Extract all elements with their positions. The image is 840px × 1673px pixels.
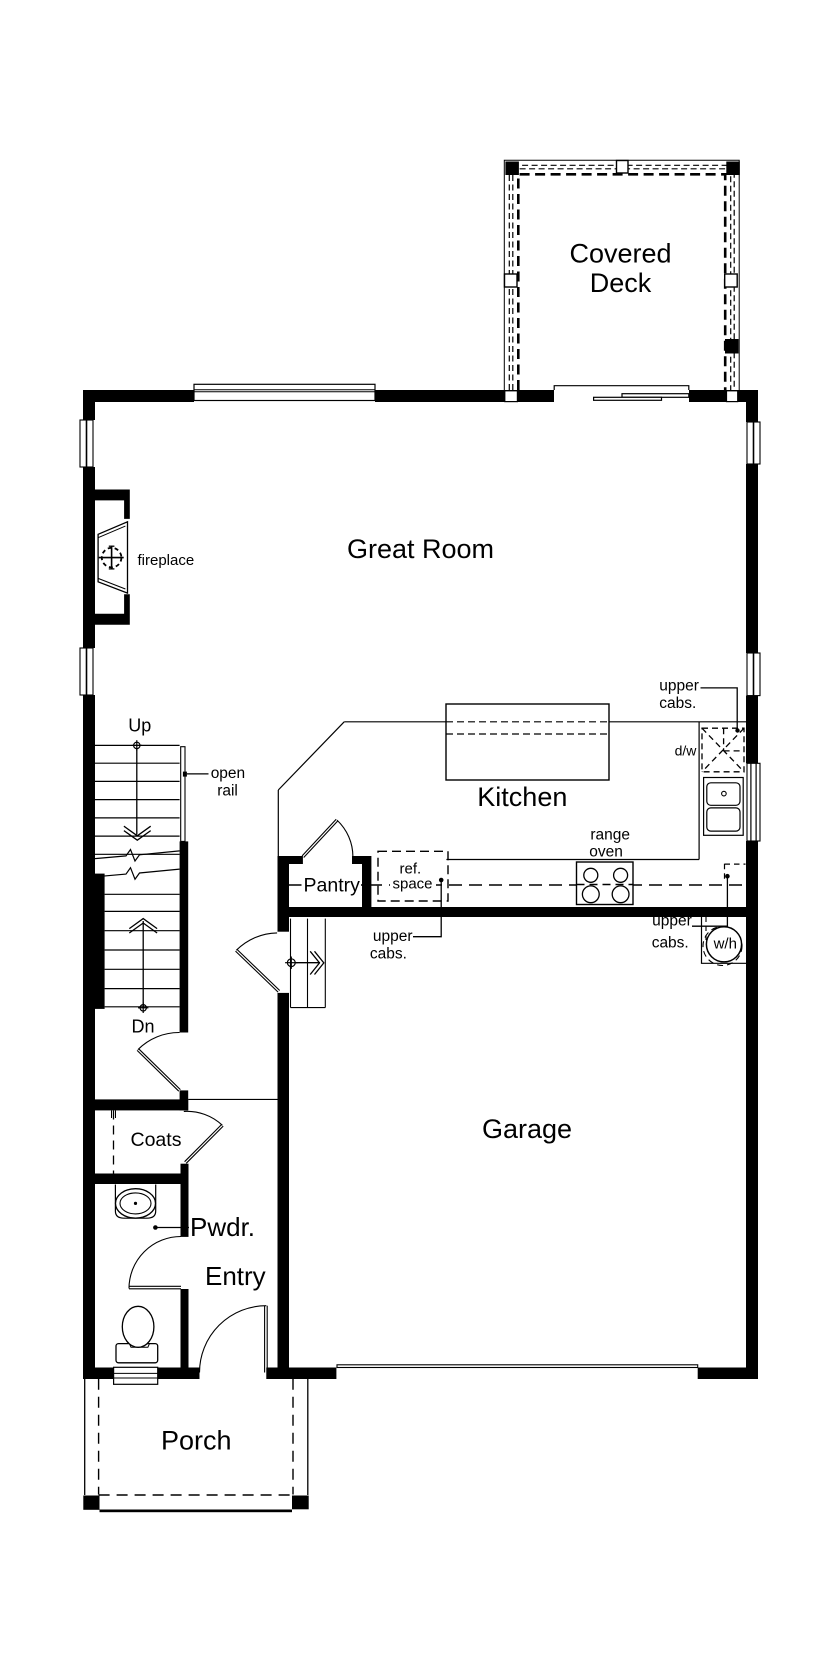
svg-text:open: open bbox=[211, 765, 245, 782]
svg-text:cabs.: cabs. bbox=[659, 695, 696, 712]
svg-text:range: range bbox=[590, 827, 630, 844]
svg-text:d/w: d/w bbox=[675, 743, 698, 759]
svg-text:cabs.: cabs. bbox=[370, 945, 407, 962]
svg-text:upper: upper bbox=[652, 913, 692, 930]
svg-text:Entry: Entry bbox=[205, 1261, 266, 1291]
svg-text:w/h: w/h bbox=[713, 936, 737, 953]
svg-text:Garage: Garage bbox=[482, 1114, 572, 1144]
svg-text:cabs.: cabs. bbox=[652, 934, 689, 951]
svg-text:Deck: Deck bbox=[590, 268, 652, 298]
svg-text:Porch: Porch bbox=[161, 1426, 232, 1456]
svg-text:fireplace: fireplace bbox=[138, 552, 195, 569]
svg-text:upper: upper bbox=[659, 677, 699, 694]
svg-text:Up: Up bbox=[128, 716, 151, 736]
svg-text:Great Room: Great Room bbox=[347, 534, 494, 564]
svg-text:space: space bbox=[393, 876, 433, 893]
svg-text:Covered: Covered bbox=[569, 239, 671, 269]
svg-text:Pantry: Pantry bbox=[304, 875, 361, 897]
svg-text:Coats: Coats bbox=[131, 1129, 182, 1151]
svg-text:Kitchen: Kitchen bbox=[477, 782, 567, 812]
svg-text:upper: upper bbox=[373, 928, 413, 945]
svg-text:oven: oven bbox=[589, 843, 623, 860]
svg-text:rail: rail bbox=[217, 783, 238, 800]
svg-text:Dn: Dn bbox=[132, 1017, 155, 1037]
svg-text:Pwdr.: Pwdr. bbox=[190, 1212, 255, 1242]
